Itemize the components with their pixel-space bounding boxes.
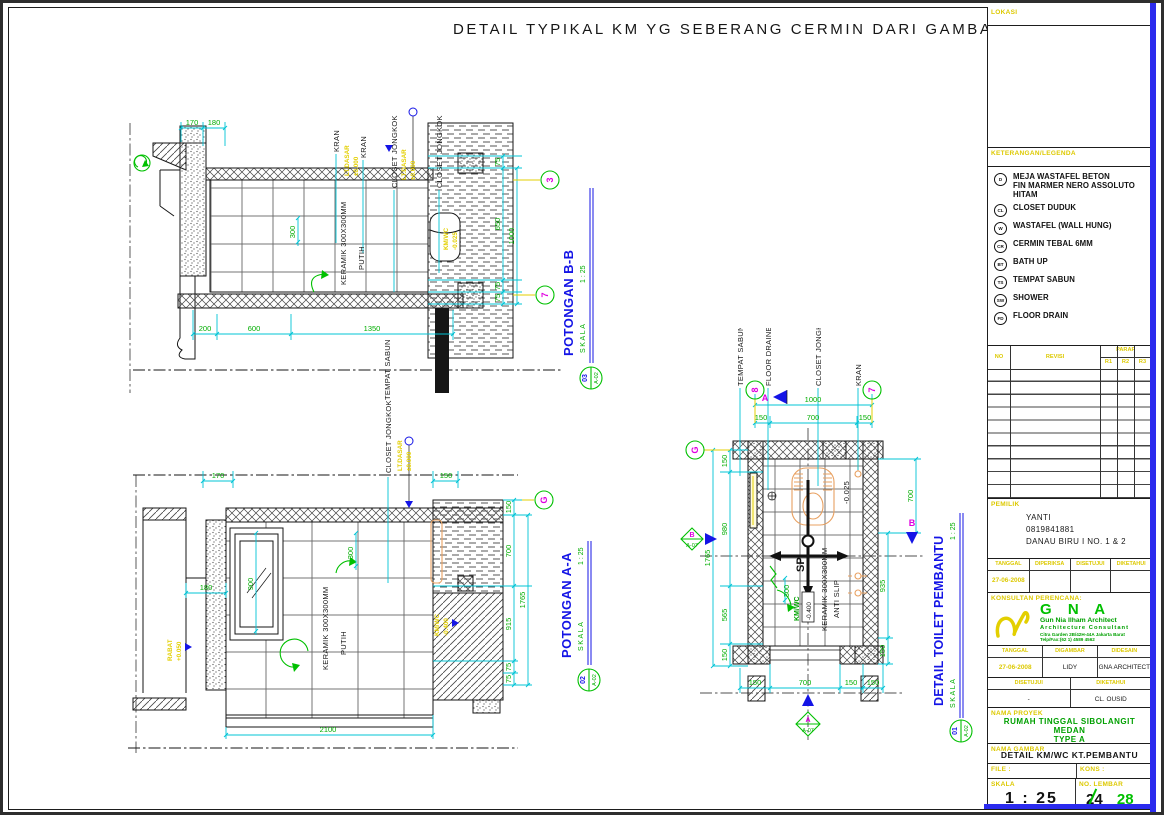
approval-date: 27-06-2008 xyxy=(988,571,1029,584)
approval-cell-diketahui: DIKETAHUI xyxy=(1110,559,1151,592)
dim-150: 150 xyxy=(720,455,729,468)
approval-cell-diketahui2: DIKETAHUI CL. OUSID xyxy=(1070,678,1152,707)
approved-by: - xyxy=(988,690,1070,703)
drawing-potongan-bb: 170 180 200 600 1350 75 650 75 75 1000 3… xyxy=(118,48,613,408)
dim-300: 300 xyxy=(782,585,791,598)
dim-75: 75 xyxy=(493,158,502,166)
legend-code-badge: FD xyxy=(994,312,1007,325)
legend-code: TS xyxy=(998,280,1004,285)
label-kmwc: KM/WC xyxy=(443,228,450,250)
rev-col-paraf: PARAF xyxy=(1100,347,1151,353)
approval-cell-digambar: DIGAMBAR LIDY xyxy=(1042,646,1096,677)
legend-label-line2: FIN MARMER NERO ASSOLUTO HITAM xyxy=(1013,181,1149,199)
drawing-ref: A-02 xyxy=(592,674,598,686)
plan-linework xyxy=(700,428,925,740)
legend-code-badge: SW xyxy=(994,294,1007,307)
sheet-border-blue-vertical xyxy=(1150,3,1156,812)
dim-980: 980 xyxy=(720,523,729,536)
dim-150: 150 xyxy=(504,501,513,514)
plan-title: DETAIL TOILET PEMBANTU SKALA 1 : 25 01 A… xyxy=(932,513,972,742)
approval-header: DIPERIKSA xyxy=(1030,559,1070,571)
dim-75: 75 xyxy=(493,282,502,290)
approval-cell-tanggal2: TANGGAL 27-06-2008 xyxy=(988,646,1042,677)
skala-label: SKALA xyxy=(950,677,957,708)
label-lt-dasar: LT.DASAR xyxy=(397,440,404,471)
legend-label-wrap: CERMIN TEBAL 6MM xyxy=(1013,239,1093,253)
dim-700: 700 xyxy=(807,413,820,422)
dim-700: 700 xyxy=(504,545,513,558)
pemilik-section: PEMILIK YANTI 0819841881 DANAU BIRU I NO… xyxy=(988,499,1151,559)
section-marker-ref: A-07 xyxy=(686,543,698,549)
grid-bubble-g: G xyxy=(539,496,549,503)
proyek-header: NAMA PROYEK xyxy=(988,708,1151,717)
dim-1765: 1765 xyxy=(703,550,712,567)
dim-75: 75 xyxy=(504,663,513,671)
dim-75: 75 xyxy=(493,294,502,302)
legend-code-badge: CL xyxy=(994,204,1007,217)
legend-code-badge: W xyxy=(994,222,1007,235)
rev-col-revisi: REVISI xyxy=(1010,354,1100,360)
legend-label: FLOOR DRAIN xyxy=(1013,311,1068,320)
legend-item: BT BATH UP xyxy=(994,257,1149,271)
label-keramik: KERAMIK 300X300MM xyxy=(339,202,348,285)
label-level-zero: ±0.000 xyxy=(353,156,360,176)
dim-650: 650 xyxy=(493,218,502,231)
gambar-section: NAMA GAMBAR DETAIL KM/WC KT.PEMBANTU xyxy=(988,744,1151,764)
project-name-line2: TYPE A xyxy=(988,735,1151,744)
dim-150: 150 xyxy=(440,471,453,480)
lembar-header: NO. LEMBAR xyxy=(1076,779,1151,788)
legend-label: MEJA WASTAFEL BETON xyxy=(1013,172,1149,181)
dim-1000: 1000 xyxy=(507,228,516,245)
sheet: DETAIL TYPIKAL KM YG SEBERANG CERMIN DAR… xyxy=(3,3,1161,812)
drawing-title: DETAIL TOILET PEMBANTU xyxy=(932,536,946,706)
legend-list: D MEJA WASTAFEL BETON FIN MARMER NERO AS… xyxy=(994,172,1149,329)
label-kran: KRAN xyxy=(359,136,368,158)
legend-label-wrap: TEMPAT SABUN xyxy=(1013,275,1075,289)
legend-label-wrap: FLOOR DRAIN xyxy=(1013,311,1068,325)
legend-section: KETERANGAN/LEGENDA D MEJA WASTAFEL BETON… xyxy=(988,148,1151,346)
scale-value: 1 : 25 xyxy=(950,522,957,540)
approval-header: DIKETAHUI xyxy=(1111,559,1151,571)
label-kmwc-level: -0.025 xyxy=(452,232,459,250)
drawing-potongan-aa: 170 150 180 900 300 2100 150 700 915 75 … xyxy=(128,393,658,778)
grid-bubble-7: 7 xyxy=(867,387,877,392)
revision-section: NO REVISI PARAF R1 R2 R3 xyxy=(988,346,1151,499)
file-label: FILE : xyxy=(988,764,1080,778)
label-rabat-level: +0.050 xyxy=(176,641,183,661)
konsultan-section: KONSULTAN PERENCANA: G N A Gun Nia Ilham… xyxy=(988,593,1151,646)
gna-logo-icon xyxy=(990,602,1042,644)
section-marker-ref: A-07 xyxy=(802,728,814,734)
dim-150: 150 xyxy=(867,678,880,687)
approval-row-3: DISETUJUI - DIKETAHUI CL. OUSID xyxy=(988,678,1151,708)
label-level-zero: ±0.000 xyxy=(410,160,417,180)
legend-code-badge: TS xyxy=(994,276,1007,289)
label-kmwc-level: -0.400 xyxy=(443,618,450,636)
approval-cell-disetujui2: DISETUJUI - xyxy=(988,678,1070,707)
legend-label-wrap: WASTAFEL (WALL HUNG) xyxy=(1013,221,1112,235)
label-lt-dasar: LT.DASAR xyxy=(401,149,408,180)
label-closet-jongkok: CLOSET JONGKOK xyxy=(814,328,823,386)
dim-300: 300 xyxy=(346,547,355,560)
drawing-number: 03 xyxy=(582,374,589,382)
drawing-detail-toilet: SP 1000 150 700 150 150 980 565 150 1765… xyxy=(675,328,990,748)
designer-name: GNA ARCHITECT xyxy=(1098,658,1151,671)
section-marker-b: B xyxy=(909,518,916,528)
label-keramik: KERAMIK 300X300MM xyxy=(321,587,330,670)
legend-label-wrap: BATH UP xyxy=(1013,257,1048,271)
legend-header: KETERANGAN/LEGENDA xyxy=(988,148,1151,157)
legend-label: TEMPAT SABUN xyxy=(1013,275,1075,284)
dim-600: 600 xyxy=(248,324,261,333)
scale-value: 1 : 25 xyxy=(580,265,587,283)
legend-label: WASTAFEL (WALL HUNG) xyxy=(1013,221,1112,230)
dim-200: 200 xyxy=(199,324,212,333)
legend-code: FD xyxy=(997,316,1003,321)
dim-180: 180 xyxy=(200,583,213,592)
dim-150: 150 xyxy=(878,645,887,658)
legend-item: FD FLOOR DRAIN xyxy=(994,311,1149,325)
pemilik-header: PEMILIK xyxy=(988,499,1151,508)
legend-label: BATH UP xyxy=(1013,257,1048,266)
section-aa-grid-bubbles: G xyxy=(522,491,553,509)
approval-header: DIKETAHUI xyxy=(1071,678,1152,690)
legend-item: TS TEMPAT SABUN xyxy=(994,275,1149,289)
lokasi-header: LOKASI xyxy=(988,7,1151,16)
dim-150: 150 xyxy=(749,678,762,687)
dim-700: 700 xyxy=(906,490,915,503)
approval-header: DIDESAIN xyxy=(1098,646,1151,658)
legend-label: CERMIN TEBAL 6MM xyxy=(1013,239,1093,248)
scale-value: 1 : 25 xyxy=(578,547,585,565)
gna-logo-word: G N A xyxy=(1040,602,1129,617)
label-kmwc: KM/WC xyxy=(794,597,801,622)
label-closet-jongkok: CLOSET JONGKOK xyxy=(390,115,399,188)
project-name-line1: RUMAH TINGGAL SIBOLANGIT MEDAN xyxy=(988,717,1151,735)
legend-label-wrap: MEJA WASTAFEL BETON FIN MARMER NERO ASSO… xyxy=(1013,172,1149,199)
revision-table-rows xyxy=(988,369,1151,498)
sheet-border-blue-horizontal xyxy=(984,804,1156,809)
label-level-zero: ±0.000 xyxy=(406,451,413,471)
label-kran: KRAN xyxy=(332,130,341,152)
owner-address: DANAU BIRU I NO. 1 & 2 xyxy=(1026,537,1126,547)
label-kran: KRAN xyxy=(854,364,863,386)
skala-label: SKALA xyxy=(580,322,587,353)
drafter-name: LIDY xyxy=(1043,658,1096,671)
dim-75: 75 xyxy=(504,675,513,683)
label-anti-slip: ANTI SLIP xyxy=(832,580,841,618)
section-marker-a: A xyxy=(805,717,810,724)
approval-date: 27-06-2008 xyxy=(988,658,1042,671)
legend-item: D MEJA WASTAFEL BETON FIN MARMER NERO AS… xyxy=(994,172,1149,199)
grid-bubble-g: G xyxy=(690,446,700,453)
approval-header: DISETUJUI xyxy=(1071,559,1111,571)
label-level: -0.025 xyxy=(842,481,851,504)
dim-150: 150 xyxy=(720,649,729,662)
dim-700: 700 xyxy=(799,678,812,687)
grid-bubble-3: 3 xyxy=(545,177,555,182)
label-keramik: KERAMIK 300X300MM xyxy=(820,548,829,631)
legend-code-badge: BT xyxy=(994,258,1007,271)
drawing-ref: A-02 xyxy=(964,725,970,737)
label-kmwc: KM/WC xyxy=(434,614,441,636)
drawing-number: 01 xyxy=(952,727,959,735)
label-lt-dasar: LT.DASAR xyxy=(344,145,351,176)
dim-300: 300 xyxy=(288,226,297,239)
legend-label: SHOWER xyxy=(1013,293,1049,302)
dim-1765: 1765 xyxy=(518,592,527,609)
dim-900: 900 xyxy=(246,578,255,591)
dim-935: 935 xyxy=(878,580,887,593)
title-block-panel: LOKASI KETERANGAN/LEGENDA D MEJA WASTAFE… xyxy=(987,7,1151,808)
approval-cell-didesain: DIDESAIN GNA ARCHITECT xyxy=(1097,646,1151,677)
dim-1000: 1000 xyxy=(805,395,822,404)
approval-header: DISETUJUI xyxy=(988,678,1070,690)
label-tempat-sabun: TEMPAT SABUN xyxy=(736,328,745,386)
legend-item: SW SHOWER xyxy=(994,293,1149,307)
approval-cell-tanggal: TANGGAL 27-06-2008 xyxy=(988,559,1029,592)
revision-table-header: NO REVISI PARAF R1 R2 R3 xyxy=(988,346,1151,370)
label-sp: SP xyxy=(795,557,807,572)
approval-header: DIGAMBAR xyxy=(1043,646,1096,658)
revision-table: NO REVISI PARAF R1 R2 R3 xyxy=(988,346,1151,498)
gna-line2: Architecture Consultant xyxy=(1040,626,1129,632)
dim-150: 150 xyxy=(845,678,858,687)
rev-col-r3: R3 xyxy=(1134,359,1151,365)
approval-cell-diperiksa: DIPERIKSA xyxy=(1029,559,1070,592)
dim-565: 565 xyxy=(720,609,729,622)
proyek-section: NAMA PROYEK RUMAH TINGGAL SIBOLANGIT MED… xyxy=(988,708,1151,744)
approval-row-2: TANGGAL 27-06-2008 DIGAMBAR LIDY DIDESAI… xyxy=(988,646,1151,678)
legend-code: D xyxy=(999,177,1002,182)
rev-col-r1: R1 xyxy=(1100,359,1117,365)
legend-code-badge: D xyxy=(994,173,1007,186)
dim-1350: 1350 xyxy=(364,324,381,333)
rev-col-no: NO xyxy=(988,354,1010,360)
label-floor-draine: FLOOR DRAINE xyxy=(764,328,773,386)
section-marker-b: B xyxy=(689,532,694,539)
grid-bubble-8: 8 xyxy=(750,387,760,392)
approval-cell-disetujui: DISETUJUI xyxy=(1070,559,1111,592)
dim-150: 150 xyxy=(859,413,872,422)
legend-item: CL CLOSET DUDUK xyxy=(994,203,1149,217)
rev-col-r2: R2 xyxy=(1117,359,1134,365)
drawing-title: POTONGAN B-B xyxy=(561,250,576,356)
gambar-header: NAMA GAMBAR xyxy=(988,744,1048,753)
label-closet-jongkok: CLOSET JONGKOK xyxy=(435,115,444,188)
label-putih: PUTIH xyxy=(357,246,366,270)
legend-item: W WASTAFEL (WALL HUNG) xyxy=(994,221,1149,235)
approval-row-1: TANGGAL 27-06-2008 DIPERIKSA DISETUJUI D… xyxy=(988,559,1151,593)
label-putih: PUTIH xyxy=(339,631,348,655)
skala-header: SKALA xyxy=(988,779,1075,788)
lokasi-section: LOKASI xyxy=(988,7,1151,148)
label-rabat: RABAT xyxy=(167,639,174,661)
legend-code: SW xyxy=(997,298,1004,303)
label-kmwc-level: -0.400 xyxy=(806,602,813,620)
legend-code: BT xyxy=(997,262,1003,267)
section-bb-grid-bubbles: 3 7 xyxy=(513,171,559,304)
legend-code-badge: CR xyxy=(994,240,1007,253)
label-closet-jongkok: CLOSET JONGKOK xyxy=(384,400,393,473)
owner-phone: 0819841881 xyxy=(1026,525,1075,535)
legend-label-wrap: SHOWER xyxy=(1013,293,1049,307)
legend-item: CR CERMIN TEBAL 6MM xyxy=(994,239,1149,253)
drawing-ref: A-02 xyxy=(594,372,600,384)
approval-header: TANGGAL xyxy=(988,559,1029,571)
approval-header: TANGGAL xyxy=(988,646,1042,658)
dim-170: 170 xyxy=(212,471,225,480)
gna-line1: Gun Nia Ilham Architect xyxy=(1040,618,1129,625)
legend-label: CLOSET DUDUK xyxy=(1013,203,1076,212)
drawing-title: POTONGAN A-A xyxy=(559,552,574,658)
grid-bubble-7: 7 xyxy=(540,292,550,297)
dim-150: 150 xyxy=(755,413,768,422)
legend-code: CR xyxy=(997,244,1004,249)
dim-915: 915 xyxy=(504,618,513,631)
section-bb-title: POTONGAN B-B SKALA 1 : 25 03 A-02 xyxy=(561,188,602,389)
gna-line4: Telp/Fax:(62 1) 4589 4562 xyxy=(1040,638,1129,643)
file-section: FILE : KONS : xyxy=(988,764,1151,779)
label-tempat-sabun: TEMPAT SABUN xyxy=(383,339,392,400)
section-marker-a: A xyxy=(762,393,769,403)
legend-label-wrap: CLOSET DUDUK xyxy=(1013,203,1076,217)
dim-2100: 2100 xyxy=(320,725,337,734)
cad-sheet-page: DETAIL TYPIKAL KM YG SEBERANG CERMIN DAR… xyxy=(0,0,1164,815)
acknowledged-by: CL. OUSID xyxy=(1071,690,1152,703)
legend-code: W xyxy=(998,226,1002,231)
drawing-number: 02 xyxy=(580,676,587,684)
owner-name: YANTI xyxy=(1026,513,1051,523)
sheet-title: DETAIL TYPIKAL KM YG SEBERANG CERMIN DAR… xyxy=(453,21,1040,38)
skala-label: SKALA xyxy=(578,620,585,651)
kons-label: KONS : xyxy=(1076,764,1108,778)
section-aa-title: POTONGAN A-A SKALA 1 : 25 02 A-02 xyxy=(559,541,600,691)
dim-170: 170 xyxy=(186,118,199,127)
dim-180: 180 xyxy=(208,118,221,127)
gna-logo-text: G N A Gun Nia Ilham Architect Architectu… xyxy=(1040,602,1129,643)
legend-code: CL xyxy=(997,208,1003,213)
